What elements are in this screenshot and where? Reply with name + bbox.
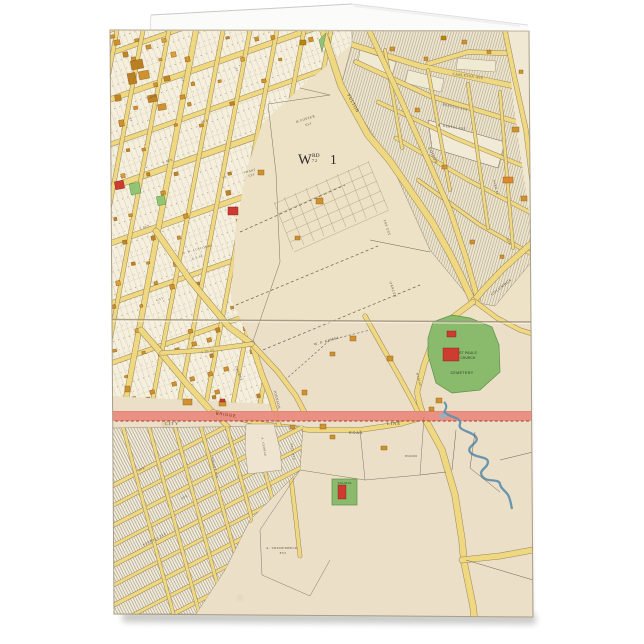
- svg-text:A. VREDENBECK: A. VREDENBECK: [266, 546, 298, 550]
- svg-text:1: 1: [330, 152, 337, 167]
- svg-text:7 2: 7 2: [312, 158, 317, 163]
- svg-text:EST: EST: [280, 551, 287, 555]
- svg-text:LINE: LINE: [387, 421, 401, 426]
- svg-text:ROAD: ROAD: [349, 431, 363, 435]
- svg-text:SCHOOL: SCHOOL: [338, 481, 353, 485]
- svg-text:CEMETERY: CEMETERY: [450, 371, 473, 375]
- svg-text:CHURCH: CHURCH: [460, 356, 476, 360]
- svg-text:WOOD: WOOD: [405, 454, 418, 458]
- svg-text:ST PAULS: ST PAULS: [459, 351, 477, 355]
- svg-text:CITY: CITY: [165, 421, 180, 426]
- svg-text:W: W: [298, 152, 312, 168]
